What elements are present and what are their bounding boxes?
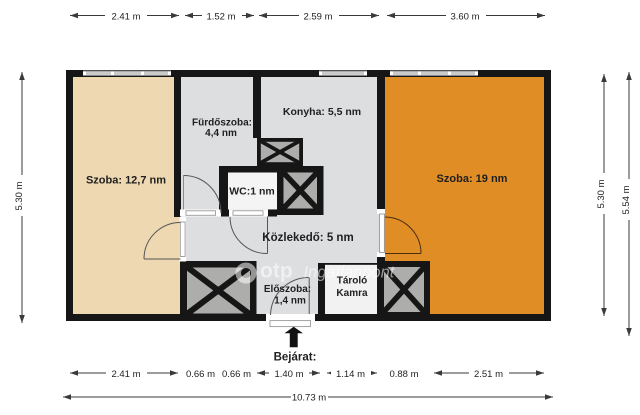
- svg-text:4,4 nm: 4,4 nm: [205, 128, 237, 139]
- svg-text:otp: otp: [260, 260, 293, 283]
- svg-text:2.51 m: 2.51 m: [474, 369, 503, 380]
- svg-text:Közlekedő: 5 nm: Közlekedő: 5 nm: [262, 232, 353, 244]
- svg-text:0.88 m: 0.88 m: [389, 369, 418, 380]
- svg-text:Kamra: Kamra: [336, 288, 368, 299]
- svg-text:3.60 m: 3.60 m: [450, 11, 479, 22]
- svg-text:Szoba: 12,7 nm: Szoba: 12,7 nm: [86, 175, 166, 187]
- svg-text:Előszoba:: Előszoba:: [264, 284, 311, 295]
- svg-text:Szoba: 19 nm: Szoba: 19 nm: [437, 173, 508, 185]
- svg-text:2.41 m: 2.41 m: [111, 11, 140, 22]
- svg-text:1.52 m: 1.52 m: [206, 11, 235, 22]
- svg-text:5.30 m: 5.30 m: [14, 181, 25, 210]
- svg-text:5.30 m: 5.30 m: [596, 179, 607, 208]
- svg-text:2.41 m: 2.41 m: [111, 369, 140, 380]
- svg-text:0.66 m: 0.66 m: [222, 369, 251, 380]
- svg-text:5.54 m: 5.54 m: [621, 185, 632, 214]
- svg-text:1,4 nm: 1,4 nm: [274, 296, 306, 307]
- svg-text:Tároló: Tároló: [337, 276, 368, 287]
- svg-text:Konyha: 5,5 nm: Konyha: 5,5 nm: [283, 106, 361, 118]
- svg-text:2.59 m: 2.59 m: [303, 11, 332, 22]
- svg-text:Bejárat:: Bejárat:: [274, 352, 317, 364]
- svg-text:0.66 m: 0.66 m: [186, 369, 215, 380]
- svg-text:10.73 m: 10.73 m: [292, 392, 326, 403]
- svg-text:1.14 m: 1.14 m: [336, 369, 365, 380]
- svg-text:WC:1 nm: WC:1 nm: [229, 186, 275, 198]
- svg-text:1.40 m: 1.40 m: [274, 369, 303, 380]
